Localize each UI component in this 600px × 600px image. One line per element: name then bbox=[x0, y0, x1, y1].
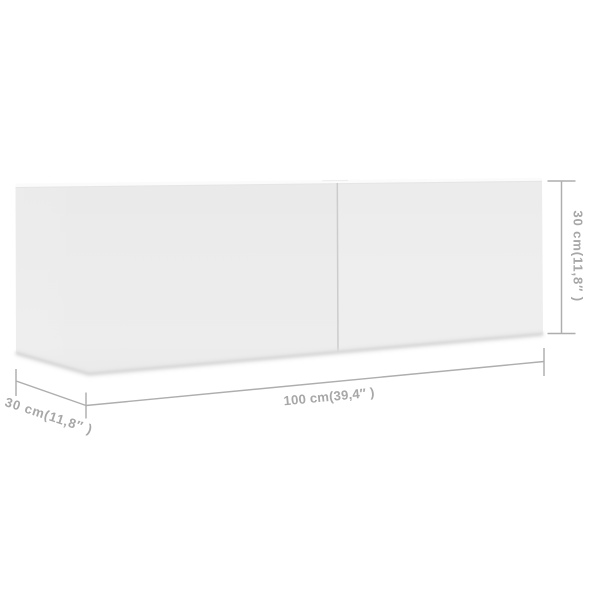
svg-text:30 cm(11,8″ ): 30 cm(11,8″ ) bbox=[571, 210, 586, 302]
